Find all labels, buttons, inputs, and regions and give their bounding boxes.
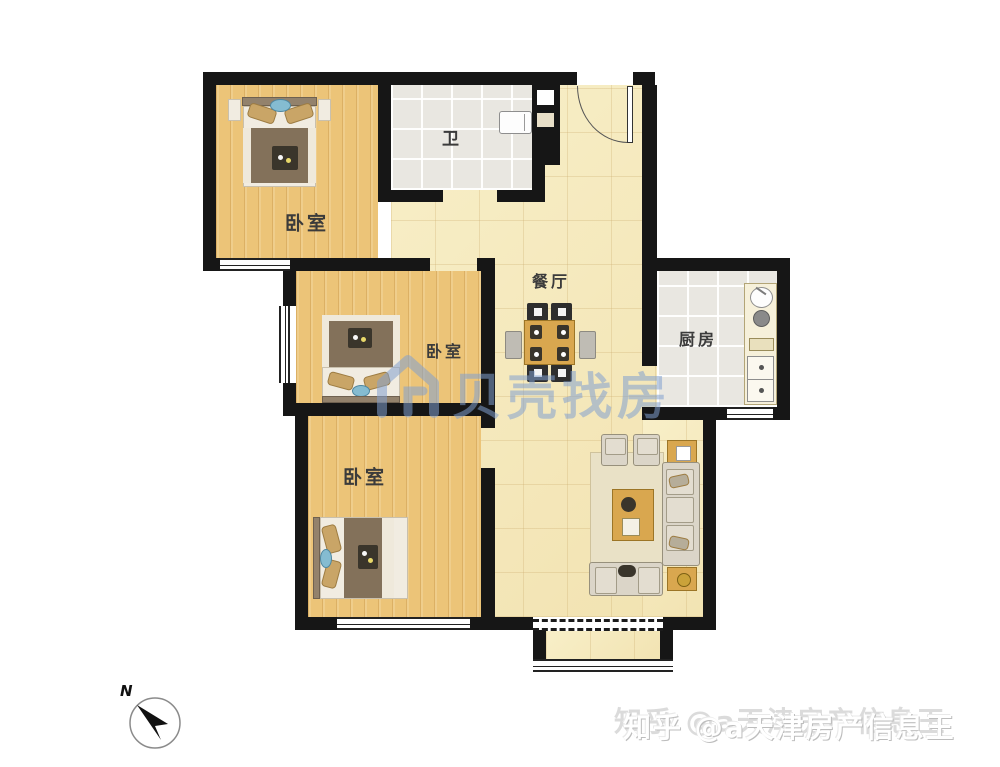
decor-dot-yellow <box>361 337 366 342</box>
wall-mid-row-c <box>477 258 495 271</box>
wall-living-bottom <box>663 617 716 630</box>
kitchen-burner <box>753 310 770 327</box>
wall-balcony-left <box>533 630 546 660</box>
living-coffee-table <box>612 489 654 541</box>
wall-bedroom-middle-left-bottom <box>283 383 296 416</box>
wall-bedroom-top-right <box>378 72 391 202</box>
wall-mid-row-b <box>290 258 430 271</box>
wall-bath-right-lower <box>532 160 545 202</box>
sofa-cushion <box>595 567 617 594</box>
bed-bottom-headboard <box>313 517 320 599</box>
bed-top-nightstand-right <box>318 99 331 121</box>
beike-house-icon <box>368 347 448 427</box>
toilet-tank-line <box>524 114 525 131</box>
sofa-cushion <box>666 497 694 523</box>
decor-dot-yellow <box>286 158 291 163</box>
room-label-bedroom-top: 卧室 <box>285 209 329 236</box>
wall-kitchen-right <box>777 271 790 420</box>
balcony-floor <box>546 631 660 660</box>
bed-bottom-lamp <box>320 549 332 568</box>
wall-kitchen-top <box>642 258 790 271</box>
living-armchair-left <box>601 434 628 466</box>
living-sofa-bottom <box>589 562 663 596</box>
balcony-opening-dashed <box>533 619 663 631</box>
cabinet-knob <box>759 388 764 393</box>
cabinet-divider <box>748 379 773 380</box>
coffee-table-decor <box>621 497 636 512</box>
room-label-bedroom-bottom: 卧室 <box>343 463 387 490</box>
placemat <box>557 325 569 339</box>
bed-bottom-fold <box>382 518 394 598</box>
armchair-cushion <box>637 438 658 455</box>
armchair-cushion <box>605 438 626 455</box>
zhihu-watermark-text: 知乎 @a天津房产信息王 <box>623 706 956 746</box>
living-side-table-bottom <box>667 567 697 591</box>
side-table-decor <box>677 573 691 587</box>
shaft-niche-beige <box>537 113 554 127</box>
bed-top-fold-left <box>243 128 251 183</box>
wall-right-upper <box>642 85 657 271</box>
bed-middle-fold-left <box>322 321 329 367</box>
shaft-niche-white <box>537 90 554 105</box>
living-armchair-right <box>633 434 660 466</box>
balcony-window <box>533 659 673 672</box>
coffee-table-tray <box>622 518 640 536</box>
sofa-tray <box>618 565 636 577</box>
dining-chair-top-left <box>527 303 548 321</box>
wall-bedroom-bottom-right <box>481 468 495 630</box>
entry-door-leaf <box>627 86 633 143</box>
room-label-kitchen: 厨房 <box>679 326 717 350</box>
wall-left-upper <box>203 72 216 270</box>
decor-dot-yellow <box>368 558 373 563</box>
bed-top-fold-right <box>308 128 316 183</box>
wall-bedroom-bottom-left <box>295 403 308 630</box>
wall-living-right <box>703 420 716 630</box>
cabinet-knob <box>759 365 764 370</box>
room-label-bathroom: 卫 <box>442 125 462 150</box>
cup <box>676 446 691 461</box>
bedroom-bottom-window <box>337 617 470 630</box>
floor-plan-canvas: 卧室 卫 餐厅 厨房 卧室 卧室 贝壳找房 N 知乎 @a天津房产信息王 知乎 … <box>0 0 1000 767</box>
room-label-dining: 餐厅 <box>532 268 570 292</box>
wall-bath-bottom-right <box>497 190 532 202</box>
placemat <box>530 325 542 339</box>
wall-bath-bottom-left <box>378 190 443 202</box>
decor-dot-white <box>362 551 367 556</box>
bed-top-lamp <box>270 99 291 112</box>
beike-watermark-text: 贝壳找房 <box>452 357 672 429</box>
bedroom-middle-window <box>279 306 290 383</box>
bedroom-top-window <box>220 258 290 271</box>
compass-north-label: N <box>120 682 133 700</box>
zhihu-watermark: 知乎 @a天津房产信息王 知乎 @a天津房产信息王 <box>614 700 994 752</box>
kitchen-small-appliance <box>749 338 774 351</box>
toilet <box>499 111 532 134</box>
living-sofa-main <box>662 462 700 566</box>
beike-watermark: 贝壳找房 <box>368 345 668 431</box>
decor-dot-white <box>278 155 283 160</box>
plate-dot <box>534 330 539 335</box>
bed-top-nightstand-left <box>228 99 241 121</box>
kitchen-window <box>727 407 773 420</box>
bed-top-decor <box>272 146 298 170</box>
plate-dot <box>561 330 566 335</box>
decor-dot-white <box>353 335 358 340</box>
compass: N <box>114 680 190 756</box>
dining-chair-top-right <box>551 303 572 321</box>
wall-mid-row-a <box>203 258 220 271</box>
kitchen-cabinet <box>747 356 774 402</box>
wall-entry-post <box>633 72 655 85</box>
wall-balcony-right <box>660 630 673 660</box>
bed-bottom-decor <box>358 545 378 569</box>
sofa-cushion <box>638 567 660 594</box>
